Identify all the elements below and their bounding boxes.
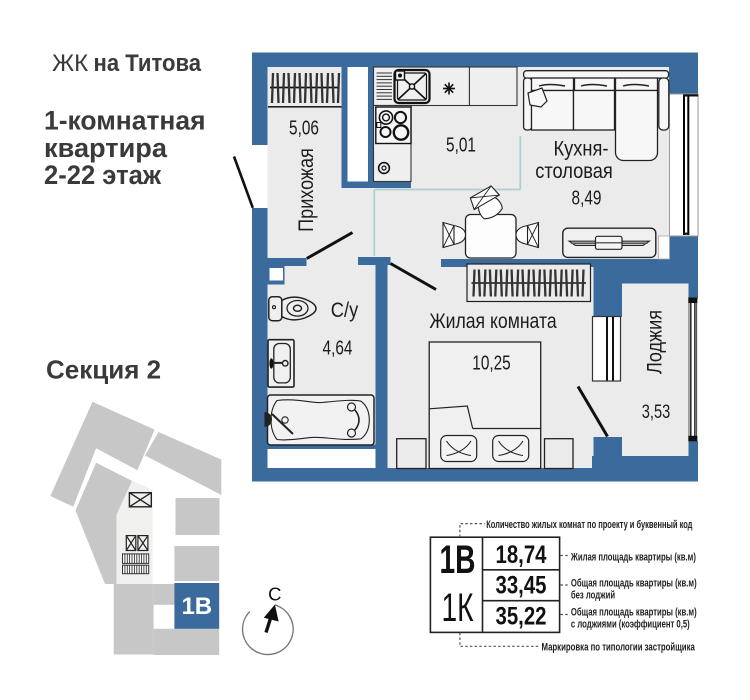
svg-text:квартира: квартира	[44, 133, 168, 163]
svg-text:5,06: 5,06	[289, 116, 319, 139]
svg-text:8,49: 8,49	[572, 186, 602, 209]
svg-text:18,74: 18,74	[496, 541, 547, 569]
svg-text:Маркировка по типологии застро: Маркировка по типологии застройщика	[542, 641, 696, 654]
svg-text:Жилая площадь квартиры (кв.м): Жилая площадь квартиры (кв.м)	[570, 551, 696, 564]
svg-text:1-комнатная: 1-комнатная	[44, 106, 206, 136]
svg-text:Кухня-: Кухня-	[554, 137, 609, 160]
svg-text:на Титова: на Титова	[94, 50, 202, 77]
svg-text:Прихожая: Прихожая	[295, 148, 319, 232]
svg-text:2-22 этаж: 2-22 этаж	[44, 160, 162, 190]
svg-text:Количество жилых комнат по про: Количество жилых комнат по проекту и бук…	[486, 517, 692, 530]
svg-text:Секция 2: Секция 2	[46, 354, 161, 384]
svg-text:с лоджиями (коэффициент 0,5): с лоджиями (коэффициент 0,5)	[571, 618, 690, 631]
svg-text:ЖК: ЖК	[52, 50, 88, 77]
svg-text:С: С	[268, 584, 281, 605]
svg-text:С/у: С/у	[331, 299, 359, 322]
svg-text:3,53: 3,53	[642, 400, 670, 423]
svg-text:10,25: 10,25	[472, 351, 510, 374]
svg-text:35,22: 35,22	[496, 603, 547, 631]
svg-text:1В: 1В	[440, 538, 476, 582]
svg-text:Жилая комната: Жилая комната	[429, 310, 556, 334]
svg-text:Лоджия: Лоджия	[643, 310, 667, 374]
svg-text:1В: 1В	[181, 593, 212, 620]
svg-text:1К: 1К	[442, 586, 474, 630]
svg-text:4,64: 4,64	[323, 336, 353, 359]
svg-text:столовая: столовая	[535, 160, 613, 183]
svg-text:33,45: 33,45	[496, 572, 547, 600]
svg-text:без лоджий: без лоджий	[571, 589, 615, 602]
svg-text:5,01: 5,01	[446, 133, 476, 156]
svg-text:Общая площадь квартиры (кв.м): Общая площадь квартиры (кв.м)	[571, 577, 697, 590]
svg-text:Общая площадь квартиры (кв.м): Общая площадь квартиры (кв.м)	[571, 606, 697, 619]
